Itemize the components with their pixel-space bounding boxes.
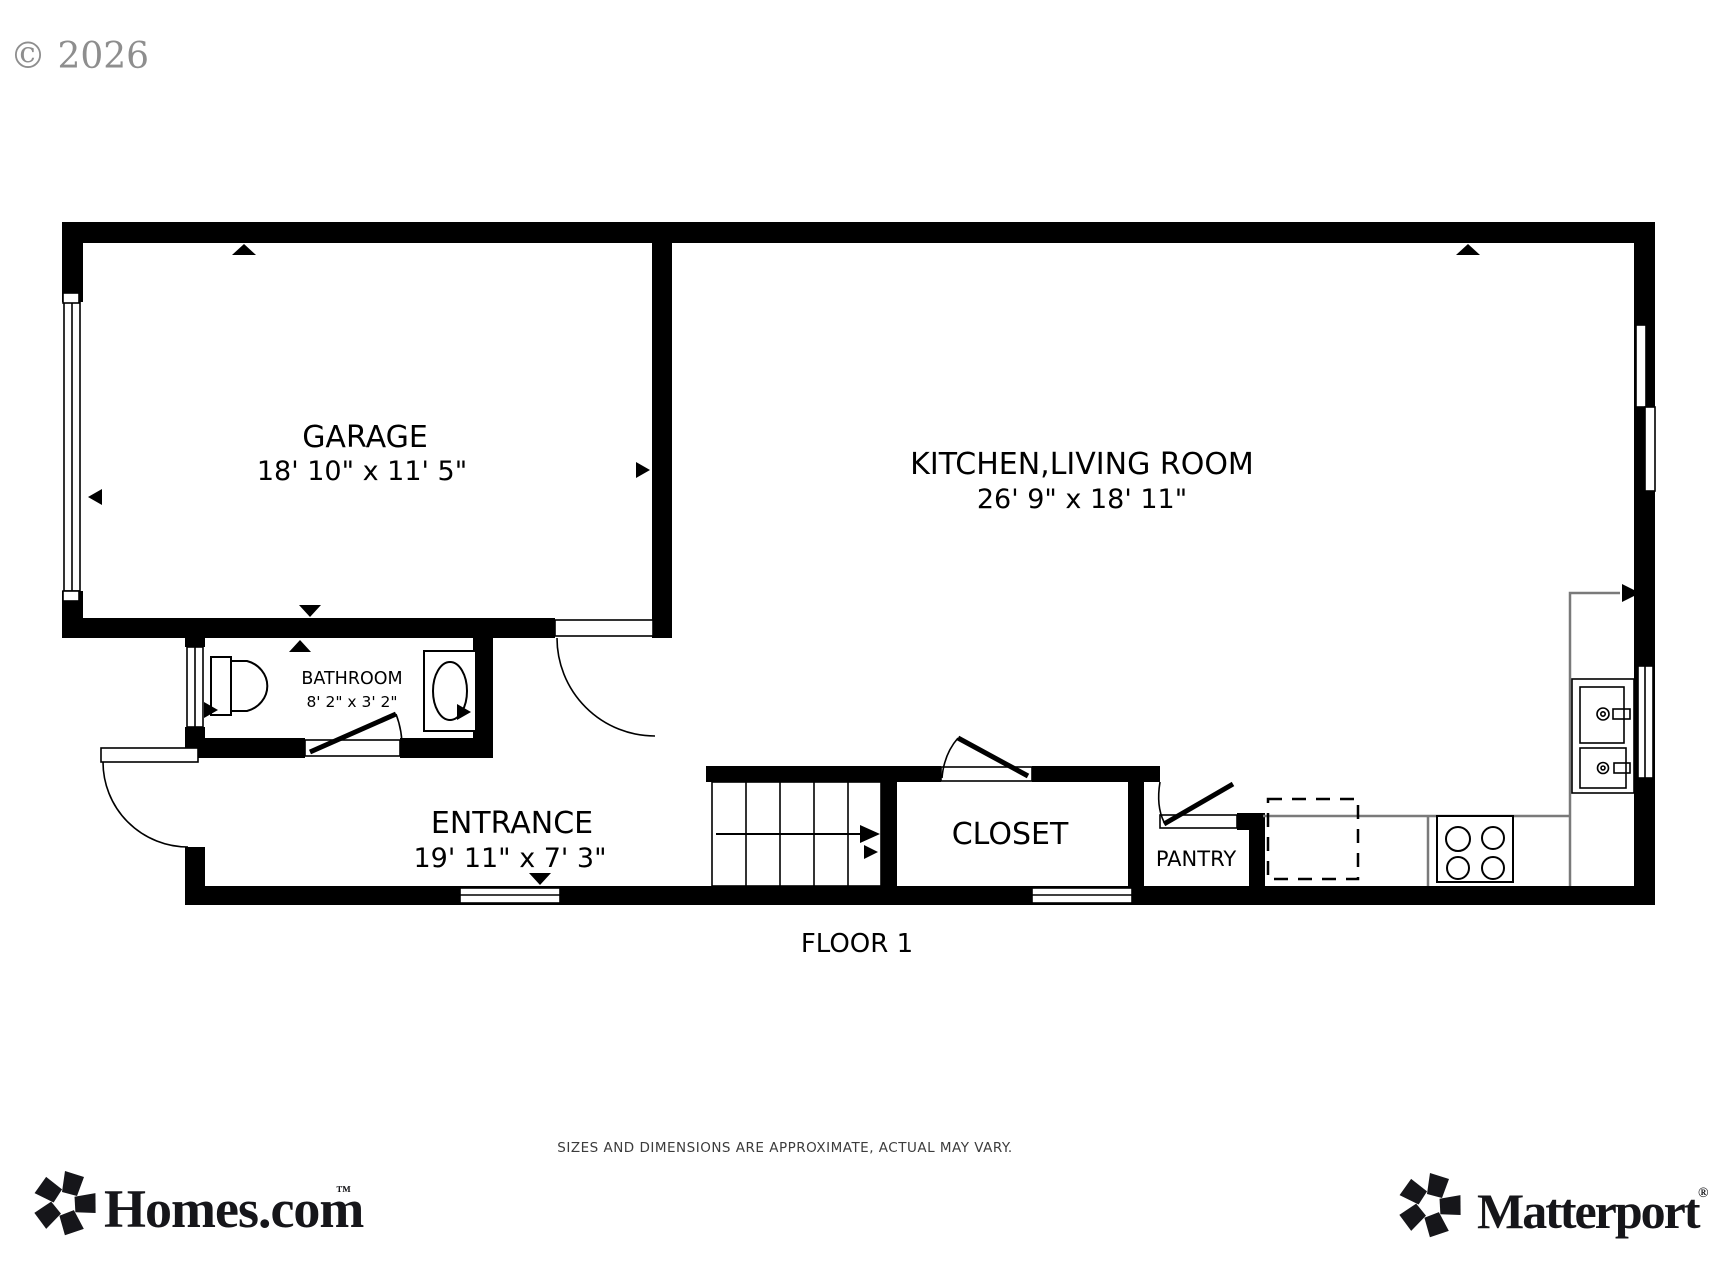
pantry-right-wall	[1249, 830, 1265, 886]
floor-plan-svg: © 2026	[0, 0, 1716, 1287]
stairs-arrow-icon	[860, 825, 880, 843]
entrance-dimensions: 19' 11" x 7' 3"	[413, 843, 606, 874]
right-window-upper-a	[1636, 325, 1646, 407]
bathroom-bottom-wall-left	[185, 738, 305, 758]
stairs-arrow-small-icon	[864, 845, 878, 859]
bathroom-dimensions: 8' 2" x 3' 2"	[306, 693, 397, 711]
stairs-top-wall	[706, 766, 897, 782]
garage-door-cap-top	[63, 293, 79, 303]
garage-entry-door	[555, 620, 653, 636]
toilet-tank-icon	[211, 657, 231, 715]
burner-icon	[1446, 827, 1470, 851]
bottom-wall	[185, 886, 1655, 905]
closet-right-wall	[1128, 766, 1144, 886]
faucet-handle	[1614, 763, 1630, 773]
garage-label: GARAGE	[302, 420, 428, 455]
wall-markers	[88, 244, 1480, 885]
faucet-icon	[1597, 708, 1609, 720]
interior-walls	[62, 222, 1265, 886]
front-door-arc	[103, 762, 188, 847]
pantry-corner-wall	[1237, 813, 1265, 830]
bathroom-label: BATHROOM	[301, 669, 402, 689]
floor-label: FLOOR 1	[801, 929, 913, 959]
kitchen-fixtures	[1263, 584, 1640, 886]
dishwasher-dashed-icon	[1268, 799, 1358, 879]
homes-logo-text: Homes.com	[104, 1179, 364, 1239]
faucet-handle	[1613, 709, 1630, 719]
burner-icon	[1447, 857, 1469, 879]
marker-left-icon	[88, 489, 102, 505]
top-wall	[62, 222, 1655, 243]
bathroom-fixtures	[211, 651, 476, 731]
closet-top-wall-right	[1032, 766, 1144, 782]
marker-up-icon	[289, 640, 311, 652]
marker-right-icon	[636, 462, 650, 478]
front-door-leaf	[101, 748, 198, 762]
garage-door-cap-bottom	[63, 591, 79, 601]
entrance-label: ENTRANCE	[431, 806, 593, 841]
doors	[101, 620, 1237, 847]
pantry-top-stub	[1144, 766, 1160, 782]
exterior-walls	[62, 222, 1655, 905]
marker-down-icon	[529, 873, 551, 885]
sink-basin-2	[1580, 748, 1626, 788]
kitchen-living-dimensions: 26' 9" x 18' 11"	[977, 484, 1187, 515]
faucet-icon	[1601, 766, 1605, 770]
homes-trademark: ™	[336, 1184, 351, 1200]
stairs	[712, 782, 881, 886]
garage-entry-door-arc	[557, 638, 655, 736]
marker-up-icon	[232, 244, 256, 255]
right-window-upper-b	[1645, 407, 1655, 491]
disclaimer-text: SIZES AND DIMENSIONS ARE APPROXIMATE, AC…	[557, 1140, 1012, 1156]
garage-dimensions: 18' 10" x 11' 5"	[257, 456, 467, 487]
faucet-icon	[1601, 712, 1605, 716]
room-labels: GARAGE 18' 10" x 11' 5" KITCHEN,LIVING R…	[257, 420, 1254, 959]
closet-top-wall-left	[897, 766, 941, 782]
copyright-watermark: © 2026	[10, 36, 149, 77]
burner-icon	[1482, 827, 1504, 849]
garage-kitchen-wall	[652, 222, 672, 638]
matterport-trademark: ®	[1698, 1186, 1709, 1201]
matterport-logo-icon	[1396, 1173, 1466, 1242]
faucet-icon	[1598, 763, 1609, 774]
garage-left-wall-upper	[62, 222, 83, 302]
stairs-right-wall	[881, 766, 897, 886]
entry-left-wall-c	[185, 847, 205, 905]
matterport-logo-text: Matterport	[1477, 1183, 1701, 1239]
marker-down-icon	[299, 605, 321, 617]
windows	[63, 293, 1655, 903]
kitchen-living-label: KITCHEN,LIVING ROOM	[910, 447, 1254, 482]
marker-up-icon	[1456, 244, 1480, 255]
counter-edge-right	[1570, 593, 1620, 886]
closet-label: CLOSET	[952, 817, 1069, 852]
toilet-bowl-icon	[231, 661, 267, 711]
homes-logo-icon	[31, 1171, 101, 1240]
pantry-label: PANTRY	[1156, 847, 1236, 871]
burner-icon	[1482, 857, 1504, 879]
footer: Homes.com ™ SIZES AND DIMENSIONS ARE APP…	[31, 1140, 1709, 1242]
